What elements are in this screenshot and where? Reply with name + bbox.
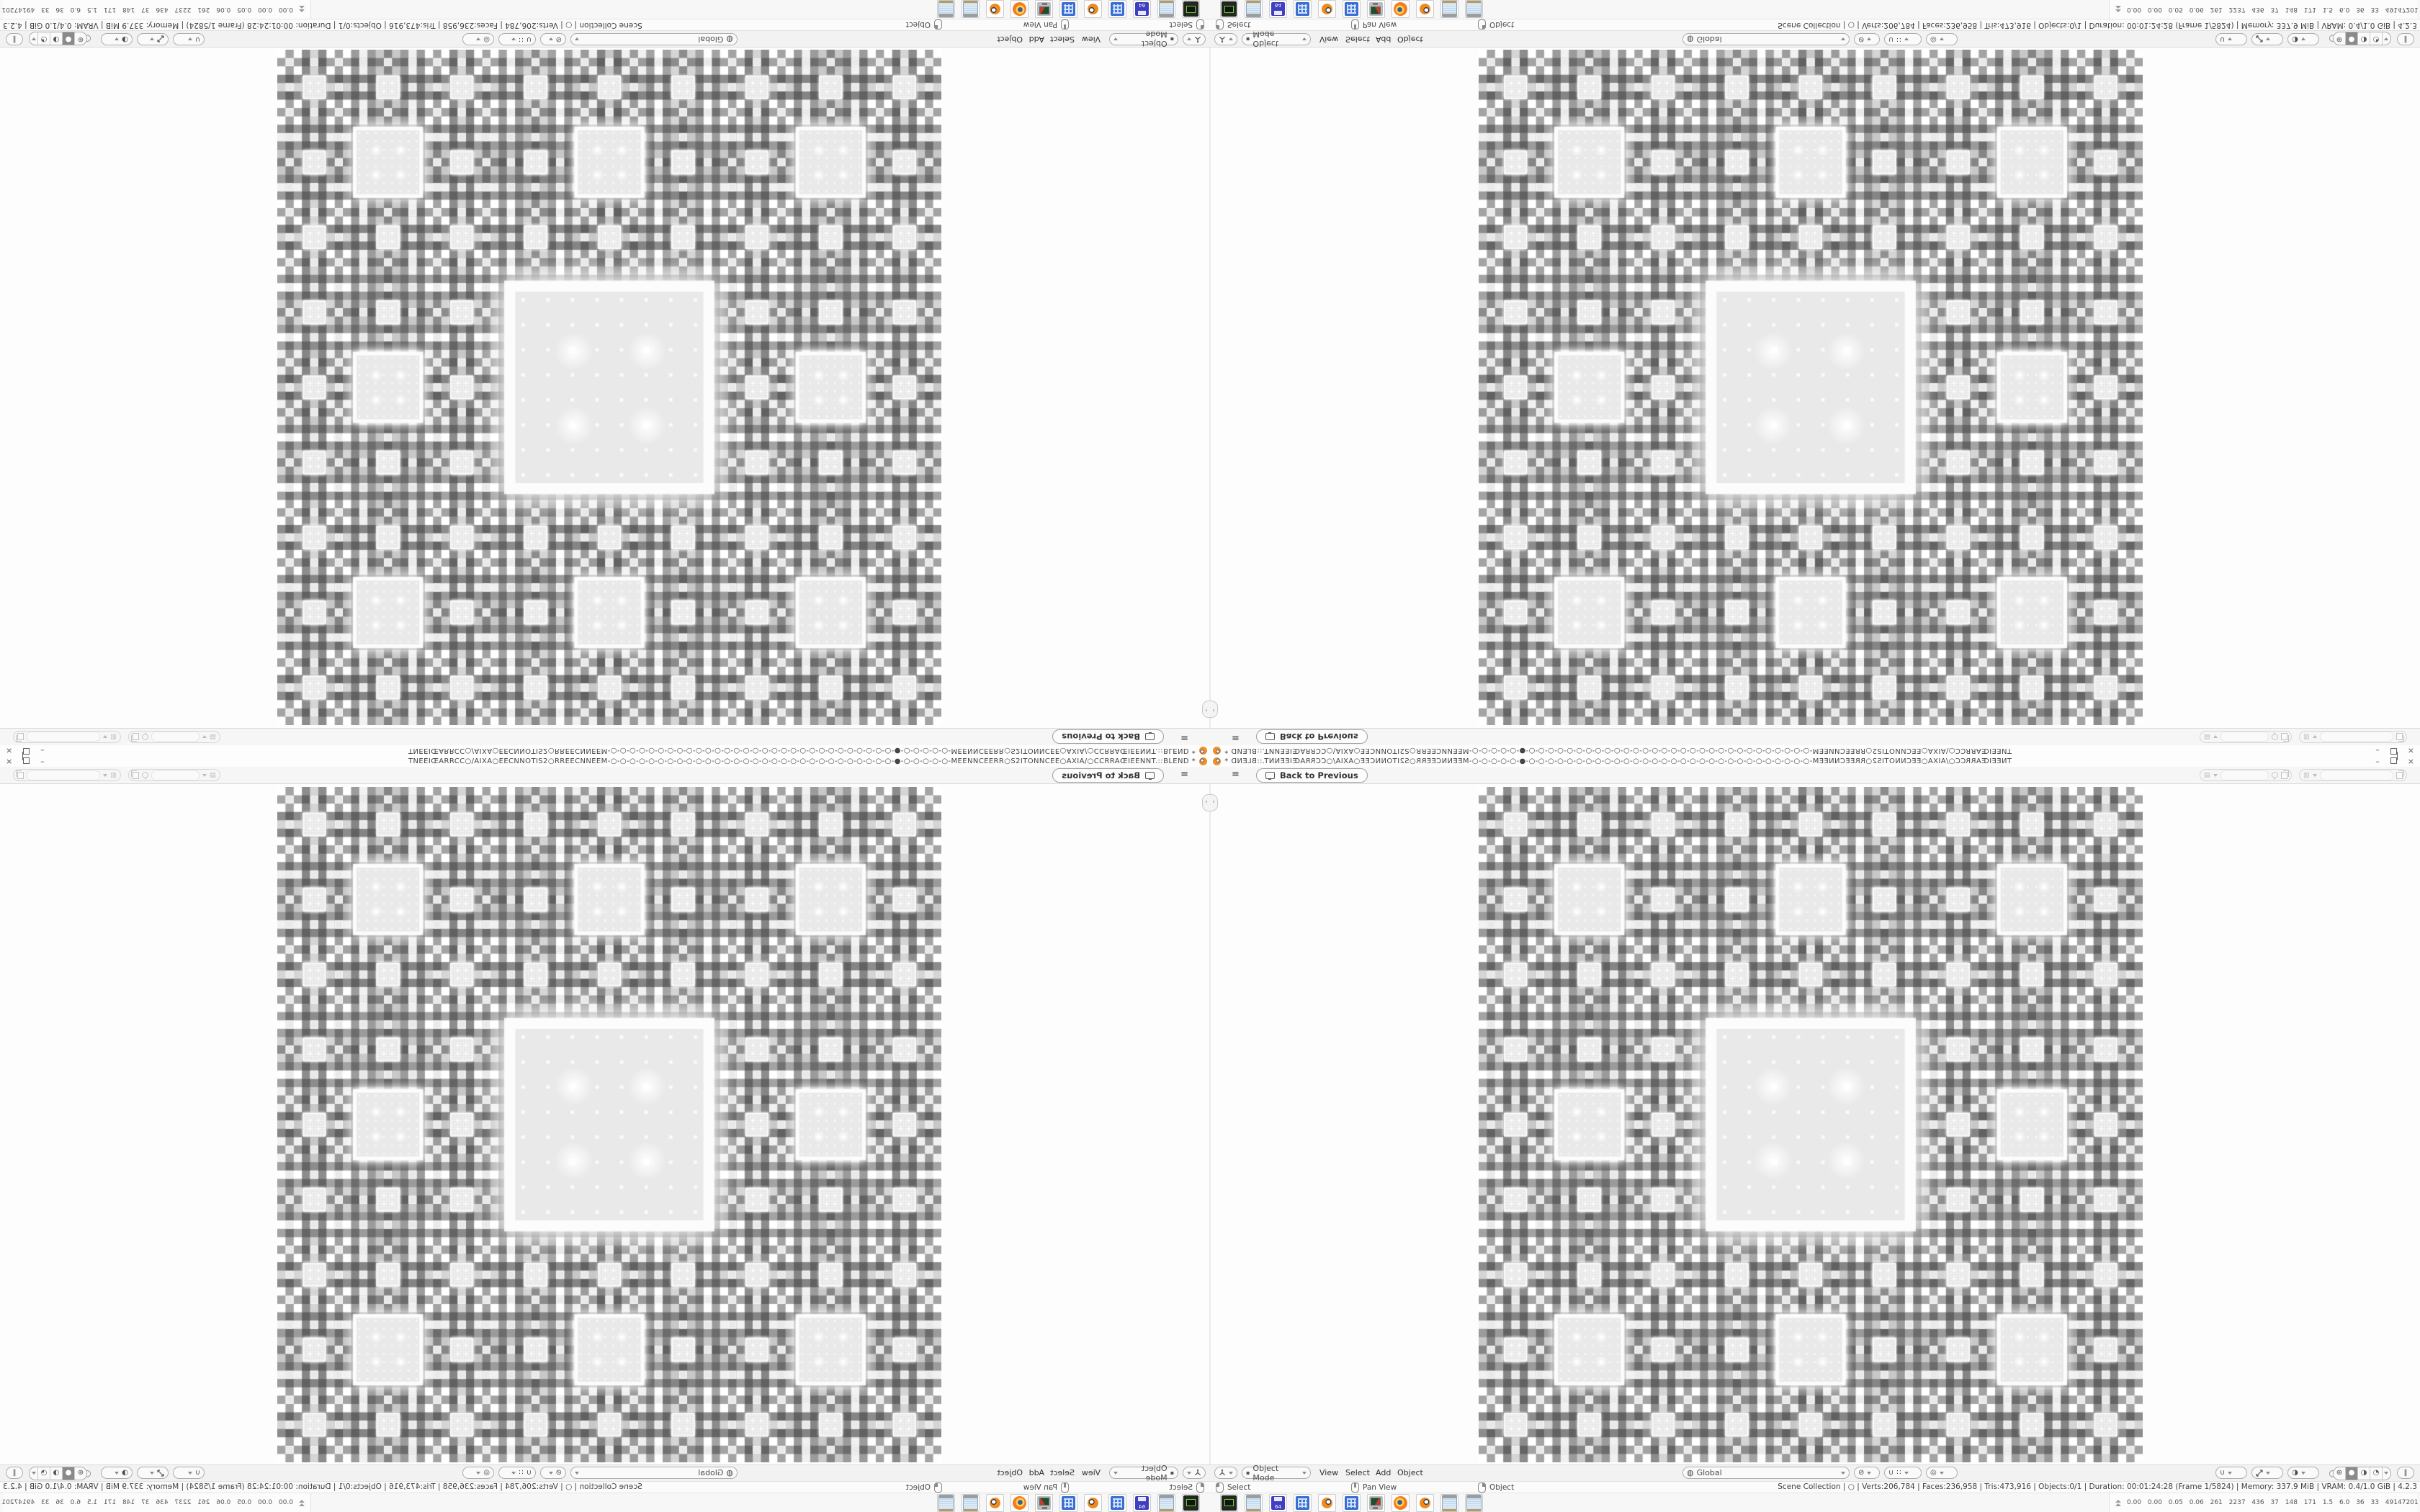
notepad-icon bbox=[1442, 1495, 1457, 1511]
editor-3d-viewport-icon bbox=[1194, 35, 1201, 43]
orientation-icon: ◍ bbox=[726, 35, 733, 44]
hint-object: Object bbox=[1478, 1482, 1514, 1493]
orientation-icon: ◍ bbox=[1687, 1468, 1694, 1477]
hint-select-label: Select bbox=[1170, 1483, 1193, 1492]
back-to-previous-button[interactable]: Back to Previous bbox=[1052, 768, 1164, 783]
chevron-down-icon bbox=[549, 1472, 553, 1475]
notepad-icon bbox=[938, 1, 954, 17]
notepad-icon bbox=[1246, 1495, 1261, 1511]
window-titlebar: TNEEIŒARRCC○/AIXA○EECNNOTIS2○RREECNNEEM-… bbox=[1210, 756, 2420, 767]
taskbar-app-disk[interactable]: 64 bbox=[1133, 0, 1151, 18]
taskbar-app-firefox[interactable] bbox=[1391, 0, 1410, 18]
chevron-up-icon[interactable] bbox=[299, 6, 305, 13]
scene-selector[interactable]: ▤ bbox=[2200, 731, 2292, 743]
mode-label: Object Mode bbox=[1121, 30, 1168, 49]
hint-pan-view: Pan View bbox=[1351, 1482, 1397, 1493]
taskbar-app-calculator[interactable] bbox=[1108, 1494, 1126, 1512]
notepad-icon bbox=[938, 1495, 954, 1511]
scene-stats-text: Scene Collection | ○ | Verts:206,784 | F… bbox=[3, 21, 642, 30]
back-to-previous-button[interactable]: Back to Previous bbox=[1256, 768, 1368, 783]
taskbar-app-firefox[interactable] bbox=[1010, 0, 1028, 18]
snapping-dropdown[interactable]: ∪ ∷ bbox=[498, 33, 536, 45]
gizmo-toggle-button[interactable] bbox=[137, 33, 169, 45]
hint-object: Object bbox=[906, 19, 942, 30]
taskbar-app-blender-2[interactable] bbox=[1416, 1494, 1434, 1512]
chevron-down-icon bbox=[1904, 38, 1909, 41]
object-mode-icon: ▪ bbox=[1246, 1470, 1250, 1476]
capture-tool-icon bbox=[1183, 1, 1198, 17]
chevron-up-icon[interactable] bbox=[2115, 6, 2121, 13]
gizmo-toggle-button[interactable] bbox=[2251, 33, 2283, 45]
hint-select: Select bbox=[1170, 19, 1204, 30]
gizmo-toggle-button[interactable] bbox=[2251, 1467, 2283, 1479]
taskbar-app-calculator[interactable] bbox=[1294, 1494, 1312, 1512]
calculator-icon bbox=[1111, 1496, 1124, 1510]
taskbar-app-blender[interactable] bbox=[1318, 1494, 1336, 1512]
view-layer-icon: ▥ bbox=[110, 734, 117, 741]
chevron-down-icon bbox=[103, 736, 107, 739]
back-to-previous-label: Back to Previous bbox=[1280, 770, 1358, 780]
restore-button[interactable] bbox=[23, 746, 30, 755]
mode-dropdown[interactable]: ▪ Object Mode bbox=[1242, 33, 1311, 45]
status-bar: Select Pan View Object Scene Collection … bbox=[0, 19, 1210, 31]
blender-app-icon bbox=[1418, 1496, 1432, 1510]
chevron-down-icon bbox=[511, 1472, 516, 1475]
close-button[interactable]: × bbox=[2408, 746, 2414, 755]
view-layer-icon: ▥ bbox=[110, 772, 117, 779]
view-layer-name-field[interactable] bbox=[27, 770, 100, 780]
notepad-icon bbox=[1442, 1, 1457, 17]
sphere-icon: ◑ bbox=[122, 35, 128, 43]
performance-overlay: 0.00 0.00 0.05 0.06 261 2237 436 37 148 … bbox=[3, 1493, 311, 1512]
restore-button[interactable] bbox=[2390, 757, 2397, 766]
pivot-icon: ⊘ bbox=[1858, 1469, 1864, 1477]
taskbar-app-calculator-2[interactable] bbox=[1343, 1494, 1361, 1512]
editor-type-button[interactable] bbox=[1214, 33, 1237, 45]
minimize-button[interactable]: – bbox=[40, 746, 45, 755]
taskbar: 64 0.00 0.00 0.05 0.06 261 2237 436 37 1… bbox=[0, 1493, 1210, 1512]
chevron-down-icon bbox=[1187, 38, 1191, 41]
blender-app-icon bbox=[1418, 2, 1432, 16]
scene-selector[interactable]: ▤ bbox=[2200, 769, 2292, 781]
toolbar-toggle-handle[interactable]: ‹ bbox=[1210, 794, 1218, 811]
pivot-point-dropdown[interactable]: ⊘ bbox=[1854, 33, 1880, 45]
proportional-editing-dropdown[interactable]: ◎ bbox=[462, 33, 494, 45]
taskbar-app-blender-2[interactable] bbox=[986, 0, 1004, 18]
menu-object[interactable]: Object bbox=[1397, 1468, 1423, 1477]
minimize-button[interactable]: – bbox=[2375, 757, 2380, 766]
shading-rendered-button[interactable]: ◔ bbox=[2370, 32, 2383, 45]
viewport-3d[interactable]: ‹ bbox=[0, 784, 1210, 1464]
transform-orientation-dropdown[interactable]: ◍ Global bbox=[1682, 1467, 1850, 1479]
proportional-icon: ◎ bbox=[1930, 35, 1937, 43]
viewport-header: ▪ Object Mode View Select Add Object ◍ G… bbox=[1210, 1464, 2420, 1481]
menger-carpet-render bbox=[1479, 50, 2143, 725]
taskbar-app-display-settings[interactable] bbox=[1367, 0, 1385, 18]
hint-pan-view: Pan View bbox=[1351, 19, 1397, 30]
object-mode-icon: ▪ bbox=[1246, 36, 1250, 42]
view-layer-selector[interactable]: ▥ bbox=[2299, 731, 2407, 743]
shading-material-button[interactable]: ◑ bbox=[2358, 1467, 2370, 1480]
snap-target-icon: ∷ bbox=[519, 35, 523, 43]
menu-object[interactable]: Object bbox=[997, 35, 1023, 44]
menu-add[interactable]: Add bbox=[1376, 1468, 1391, 1477]
toolbar-toggle-handle[interactable]: ‹ bbox=[1202, 701, 1210, 718]
hint-object-label: Object bbox=[1489, 20, 1514, 29]
chevron-down-icon bbox=[2266, 38, 2270, 41]
calculator-icon bbox=[1111, 2, 1124, 16]
frame-time-values: 0.00 0.00 0.05 0.06 261 2237 436 37 148 … bbox=[2127, 1499, 2419, 1506]
scene-name-field[interactable] bbox=[2220, 770, 2269, 780]
taskbar-app-notepad-2[interactable] bbox=[962, 0, 980, 18]
scene-icon: ▤ bbox=[2204, 772, 2210, 779]
blender-logo-icon bbox=[1213, 747, 1221, 755]
shading-solid-button[interactable]: ● bbox=[2346, 32, 2358, 45]
taskbar-app-notepad-2[interactable] bbox=[962, 1494, 980, 1512]
shading-solid-button[interactable]: ● bbox=[2346, 1467, 2358, 1480]
shading-material-button[interactable]: ◑ bbox=[2358, 32, 2370, 45]
window-controls: – × bbox=[6, 745, 45, 756]
chevron-down-icon bbox=[115, 1472, 119, 1475]
taskbar-app-notepad-3[interactable] bbox=[937, 1494, 955, 1512]
overlays-dropdown-button[interactable]: ◑ bbox=[101, 33, 133, 45]
shading-rendered-button[interactable]: ◔ bbox=[2370, 1467, 2383, 1480]
taskbar-app-firefox[interactable] bbox=[1010, 1494, 1028, 1512]
chevron-down-icon bbox=[1229, 38, 1233, 41]
snap-target-icon: ∷ bbox=[519, 1469, 523, 1477]
hint-object-label: Object bbox=[1489, 1483, 1514, 1492]
display-settings-icon bbox=[1369, 2, 1383, 16]
menu-view[interactable]: View bbox=[1082, 35, 1101, 44]
taskbar-app-notepad-2[interactable] bbox=[1440, 1494, 1458, 1512]
taskbar-app-firefox[interactable] bbox=[1391, 1494, 1410, 1512]
view-layer-selector[interactable]: ▥ bbox=[2299, 769, 2407, 781]
chevron-down-icon bbox=[202, 736, 207, 739]
chevron-down-icon bbox=[2301, 38, 2305, 41]
window-title-text: TNEEIŒARRCC○/AIXA○EECNNOTIS2○RREECNNEEM-… bbox=[1224, 746, 2012, 755]
chevron-down-icon bbox=[575, 38, 579, 41]
shading-rendered-button[interactable]: ◔ bbox=[37, 32, 50, 45]
shading-wireframe-button[interactable]: ⊕ bbox=[2334, 32, 2346, 45]
snap-toggle-button[interactable]: ∪ bbox=[2215, 1467, 2247, 1479]
notepad-icon bbox=[1246, 1, 1261, 17]
view-layer-icon: ▥ bbox=[2303, 734, 2310, 741]
firefox-icon bbox=[1013, 2, 1026, 16]
back-to-previous-label: Back to Previous bbox=[1280, 732, 1358, 742]
magnet-icon: ∪ bbox=[526, 1469, 532, 1477]
minimize-button[interactable]: – bbox=[40, 757, 45, 766]
snap-toggle-button[interactable]: ∪ bbox=[173, 33, 205, 45]
toolbar-toggle-handle[interactable]: ‹ bbox=[1210, 701, 1218, 718]
xray-toggle-button[interactable]: ‖ bbox=[6, 1467, 23, 1479]
xray-toggle-button[interactable]: ‖ bbox=[6, 33, 23, 45]
mode-dropdown[interactable]: ▪ Object Mode bbox=[1109, 1467, 1178, 1479]
taskbar-app-notepad-3[interactable] bbox=[937, 0, 955, 18]
taskbar-app-display-settings[interactable] bbox=[1035, 1494, 1053, 1512]
new-view-layer-icon[interactable] bbox=[2396, 772, 2403, 779]
overlays-dropdown-button[interactable]: ◑ bbox=[101, 1467, 133, 1479]
editor-3d-viewport-icon bbox=[1194, 1469, 1201, 1477]
taskbar-app-notepad-3[interactable] bbox=[1465, 0, 1483, 18]
taskbar-app-blender[interactable] bbox=[1084, 1494, 1102, 1512]
taskbar: 64 0.00 0.00 0.05 0.06 261 2237 436 37 1… bbox=[0, 0, 1210, 19]
blender-logo-icon bbox=[1213, 757, 1221, 765]
shading-wireframe-button[interactable]: ⊕ bbox=[74, 32, 86, 45]
taskbar-app-capture-tool[interactable] bbox=[1220, 0, 1238, 18]
shading-wireframe-button[interactable]: ⊕ bbox=[2334, 1467, 2346, 1480]
blender-window: TNEEIŒARRCC○/AIXA○EECNNOTIS2○RREECNNEEM-… bbox=[0, 756, 1210, 1512]
proportional-editing-dropdown[interactable]: ◎ bbox=[462, 1467, 494, 1479]
pin-icon[interactable] bbox=[2272, 772, 2278, 778]
chevron-down-icon bbox=[202, 774, 207, 777]
menu-add[interactable]: Add bbox=[1029, 35, 1044, 44]
menu-view[interactable]: View bbox=[1319, 35, 1338, 44]
close-button[interactable]: × bbox=[6, 746, 12, 755]
calculator-icon bbox=[1345, 2, 1358, 16]
chevron-down-icon bbox=[2313, 736, 2317, 739]
scene-stats-text: Scene Collection | ○ | Verts:206,784 | F… bbox=[3, 1482, 642, 1491]
taskbar-app-display-settings[interactable] bbox=[1367, 1494, 1385, 1512]
hamburger-menu-icon[interactable]: ≡ bbox=[1180, 769, 1188, 780]
menu-object[interactable]: Object bbox=[997, 1468, 1023, 1477]
hint-select: Select bbox=[1170, 1482, 1204, 1493]
scene-icon: ▤ bbox=[2204, 734, 2210, 741]
pin-icon[interactable] bbox=[2272, 734, 2278, 740]
status-bar: Select Pan View Object Scene Collection … bbox=[0, 1481, 1210, 1493]
copy-scene-icon[interactable] bbox=[2281, 772, 2287, 779]
chevron-up-icon[interactable] bbox=[299, 1500, 305, 1506]
mode-dropdown[interactable]: ▪ Object Mode bbox=[1242, 1467, 1311, 1479]
taskbar-app-calculator[interactable] bbox=[1294, 0, 1312, 18]
snap-toggle-button[interactable]: ∪ bbox=[173, 1467, 205, 1479]
sphere-icon: ◑ bbox=[2292, 35, 2298, 43]
shading-material-button[interactable]: ◑ bbox=[50, 1467, 62, 1480]
blender-app-icon bbox=[1320, 1496, 1334, 1510]
status-bar: Select Pan View Object Scene Collection … bbox=[1210, 1481, 2420, 1493]
taskbar-app-calculator[interactable] bbox=[1108, 0, 1126, 18]
middle-mouse-icon bbox=[1061, 1482, 1069, 1493]
chevron-down-icon bbox=[2228, 1472, 2232, 1475]
view-layer-name-field[interactable] bbox=[2320, 732, 2393, 742]
view-layer-name-field[interactable] bbox=[2320, 770, 2393, 780]
scene-name-field[interactable] bbox=[2220, 732, 2269, 742]
pivot-point-dropdown[interactable]: ⊘ bbox=[1854, 1467, 1880, 1479]
scene-name-field[interactable] bbox=[151, 732, 200, 742]
shading-rendered-button[interactable]: ◔ bbox=[37, 1467, 50, 1480]
right-mouse-icon bbox=[1478, 1482, 1486, 1493]
pivot-point-dropdown[interactable]: ⊘ bbox=[540, 33, 566, 45]
editor-type-button[interactable] bbox=[1183, 1467, 1206, 1479]
new-view-layer-icon[interactable] bbox=[17, 772, 24, 779]
viewport-3d[interactable]: ‹ bbox=[0, 48, 1210, 728]
taskbar-app-notepad[interactable] bbox=[1245, 1494, 1263, 1512]
chevron-down-icon bbox=[115, 38, 119, 41]
restore-button[interactable] bbox=[2390, 746, 2397, 755]
hint-object-label: Object bbox=[906, 1483, 931, 1492]
copy-scene-icon[interactable] bbox=[2281, 734, 2287, 741]
menu-select[interactable]: Select bbox=[1050, 35, 1075, 44]
view-layer-selector[interactable]: ▥ bbox=[13, 769, 121, 781]
menger-carpet-render bbox=[277, 787, 941, 1462]
pin-icon[interactable] bbox=[142, 772, 148, 778]
menu-select[interactable]: Select bbox=[1345, 35, 1370, 44]
snapping-dropdown[interactable]: ∪ ∷ bbox=[498, 1467, 536, 1479]
notepad-icon bbox=[1466, 1, 1482, 17]
hint-select: Select bbox=[1216, 19, 1250, 30]
pivot-point-dropdown[interactable]: ⊘ bbox=[540, 1467, 566, 1479]
pin-icon[interactable] bbox=[142, 734, 148, 740]
chevron-down-icon bbox=[150, 38, 154, 41]
pivot-icon: ⊘ bbox=[556, 35, 562, 43]
restore-button[interactable] bbox=[23, 757, 30, 766]
chevron-down-icon bbox=[1904, 1472, 1909, 1475]
editor-type-button[interactable] bbox=[1214, 1467, 1237, 1479]
taskbar-app-notepad-3[interactable] bbox=[1465, 1494, 1483, 1512]
shading-solid-button[interactable]: ● bbox=[62, 1467, 74, 1480]
xray-toggle-button[interactable]: ‖ bbox=[2397, 1467, 2414, 1479]
taskbar-apps: 64 bbox=[1220, 1494, 1483, 1512]
blender-app-icon bbox=[1086, 1496, 1100, 1510]
taskbar-app-notepad[interactable] bbox=[1157, 1494, 1175, 1512]
snapping-dropdown[interactable]: ∪ ∷ bbox=[1884, 1467, 1922, 1479]
shading-material-button[interactable]: ◑ bbox=[50, 32, 62, 45]
new-view-layer-icon[interactable] bbox=[2396, 734, 2403, 741]
back-to-previous-button[interactable]: Back to Previous bbox=[1256, 729, 1368, 744]
sphere-icon: ◑ bbox=[2292, 1469, 2298, 1477]
proportional-editing-dropdown[interactable]: ◎ bbox=[1926, 33, 1958, 45]
snap-toggle-button[interactable]: ∪ bbox=[2215, 33, 2247, 45]
transform-orientation-dropdown[interactable]: ◍ Global bbox=[570, 1467, 738, 1479]
proportional-icon: ◎ bbox=[1930, 1469, 1937, 1477]
menu-select[interactable]: Select bbox=[1050, 1468, 1075, 1477]
taskbar-app-blender-2[interactable] bbox=[986, 1494, 1004, 1512]
taskbar-app-capture-tool[interactable] bbox=[1182, 0, 1200, 18]
viewport-3d[interactable]: ‹ bbox=[1210, 784, 2420, 1464]
proportional-icon: ◎ bbox=[483, 1469, 490, 1477]
move-arrows-icon bbox=[2256, 1470, 2263, 1477]
taskbar-app-blender[interactable] bbox=[1318, 0, 1336, 18]
taskbar-app-capture-tool[interactable] bbox=[1220, 1494, 1238, 1512]
editor-3d-viewport-icon bbox=[1219, 1469, 1226, 1477]
back-to-previous-button[interactable]: Back to Previous bbox=[1052, 729, 1164, 744]
menu-select[interactable]: Select bbox=[1345, 1468, 1370, 1477]
menu-add[interactable]: Add bbox=[1029, 1468, 1044, 1477]
frame-time-values: 0.00 0.00 0.05 0.06 261 2237 436 37 148 … bbox=[1, 1499, 293, 1506]
taskbar-app-display-settings[interactable] bbox=[1035, 0, 1053, 18]
copy-scene-icon[interactable] bbox=[133, 734, 139, 741]
scene-selector[interactable]: ▤ bbox=[128, 731, 220, 743]
menger-carpet-render bbox=[277, 50, 941, 725]
menu-view[interactable]: View bbox=[1082, 1468, 1101, 1477]
back-to-previous-label: Back to Previous bbox=[1062, 732, 1140, 742]
taskbar: 64 0.00 0.00 0.05 0.06 261 2237 436 37 1… bbox=[1210, 0, 2420, 19]
calculator-icon bbox=[1296, 2, 1309, 16]
orientation-label: Global bbox=[582, 35, 723, 44]
taskbar-app-capture-tool[interactable] bbox=[1182, 1494, 1200, 1512]
proportional-editing-dropdown[interactable]: ◎ bbox=[1926, 1467, 1958, 1479]
taskbar-app-calculator-2[interactable] bbox=[1343, 0, 1361, 18]
close-button[interactable]: × bbox=[2408, 757, 2414, 766]
overlays-dropdown-button[interactable]: ◑ bbox=[2287, 1467, 2319, 1479]
pivot-icon: ⊘ bbox=[1858, 35, 1864, 43]
shading-solid-button[interactable]: ● bbox=[62, 32, 74, 45]
snapping-dropdown[interactable]: ∪ ∷ bbox=[1884, 33, 1922, 45]
taskbar-app-calculator-2[interactable] bbox=[1059, 0, 1077, 18]
xray-toggle-button[interactable]: ‖ bbox=[2397, 33, 2414, 45]
menu-object[interactable]: Object bbox=[1397, 35, 1423, 44]
taskbar-app-disk[interactable]: 64 bbox=[1133, 1494, 1151, 1512]
hint-pan-view: Pan View bbox=[1023, 1482, 1069, 1493]
minimize-button[interactable]: – bbox=[2375, 746, 2380, 755]
blender-window: TNEEIŒARRCC○/AIXA○EECNNOTIS2○RREECNNEEM-… bbox=[1210, 756, 2420, 1512]
taskbar-app-disk[interactable]: 64 bbox=[1269, 1494, 1287, 1512]
chevron-down-icon bbox=[1867, 38, 1871, 41]
view-layer-name-field[interactable] bbox=[27, 732, 100, 742]
shading-mode-group: ⊕ ● ◑ ◔ bbox=[29, 1467, 87, 1480]
window-titlebar: TNEEIŒARRCC○/AIXA○EECNNOTIS2○RREECNNEEM-… bbox=[1210, 745, 2420, 756]
scene-name-field[interactable] bbox=[151, 770, 200, 780]
taskbar-apps: 64 bbox=[937, 0, 1200, 18]
topbar: ≡ Back to Previous ▤ ▥ bbox=[1210, 728, 2420, 745]
notepad-icon bbox=[1466, 1495, 1482, 1511]
taskbar-app-calculator-2[interactable] bbox=[1059, 1494, 1077, 1512]
taskbar-app-notepad[interactable] bbox=[1245, 0, 1263, 18]
hamburger-menu-icon[interactable]: ≡ bbox=[1232, 732, 1240, 743]
taskbar: 64 0.00 0.00 0.05 0.06 261 2237 436 37 1… bbox=[1210, 1493, 2420, 1512]
transform-orientation-dropdown[interactable]: ◍ Global bbox=[1682, 33, 1850, 45]
toolbar-toggle-handle[interactable]: ‹ bbox=[1202, 794, 1210, 811]
new-view-layer-icon[interactable] bbox=[17, 734, 24, 741]
viewport-3d[interactable]: ‹ bbox=[1210, 48, 2420, 728]
copy-scene-icon[interactable] bbox=[133, 772, 139, 779]
blender-logo-icon bbox=[1199, 747, 1207, 755]
mode-dropdown[interactable]: ▪ Object Mode bbox=[1109, 33, 1178, 45]
window-controls: – × bbox=[2375, 756, 2414, 767]
gizmo-toggle-button[interactable] bbox=[137, 1467, 169, 1479]
disk-label: 64 bbox=[1271, 1504, 1285, 1510]
view-layer-selector[interactable]: ▥ bbox=[13, 731, 121, 743]
floppy-disk-icon: 64 bbox=[1271, 2, 1285, 16]
hamburger-menu-icon[interactable]: ≡ bbox=[1180, 732, 1188, 743]
magnet-icon: ∪ bbox=[2220, 1469, 2225, 1477]
editor-type-button[interactable] bbox=[1183, 33, 1206, 45]
chevron-up-icon[interactable] bbox=[2115, 1500, 2121, 1506]
blender-app-icon bbox=[988, 1496, 1002, 1510]
overlays-dropdown-button[interactable]: ◑ bbox=[2287, 33, 2319, 45]
menu-view[interactable]: View bbox=[1319, 1468, 1338, 1477]
chevron-down-icon bbox=[32, 1472, 36, 1475]
scene-icon: ▤ bbox=[210, 734, 216, 741]
taskbar-app-disk[interactable]: 64 bbox=[1269, 0, 1287, 18]
transform-orientation-dropdown[interactable]: ◍ Global bbox=[570, 33, 738, 45]
menu-add[interactable]: Add bbox=[1376, 35, 1391, 44]
taskbar-app-notepad[interactable] bbox=[1157, 0, 1175, 18]
shading-wireframe-button[interactable]: ⊕ bbox=[74, 1467, 86, 1480]
magnet-icon: ∪ bbox=[195, 35, 200, 43]
close-button[interactable]: × bbox=[6, 757, 12, 766]
chevron-down-icon bbox=[2228, 38, 2232, 41]
taskbar-app-notepad-2[interactable] bbox=[1440, 0, 1458, 18]
window-titlebar: TNEEIŒARRCC○/AIXA○EECNNOTIS2○RREECNNEEM-… bbox=[0, 756, 1210, 767]
display-back-icon bbox=[1265, 772, 1275, 779]
scene-stats-text: Scene Collection | ○ | Verts:206,784 | F… bbox=[1778, 1482, 2417, 1491]
viewport-header: ▪ Object Mode View Select Add Object ◍ G… bbox=[1210, 31, 2420, 48]
taskbar-app-blender-2[interactable] bbox=[1416, 0, 1434, 18]
scene-selector[interactable]: ▤ bbox=[128, 769, 220, 781]
taskbar-app-blender[interactable] bbox=[1084, 0, 1102, 18]
hamburger-menu-icon[interactable]: ≡ bbox=[1232, 769, 1240, 780]
object-mode-icon: ▪ bbox=[1170, 36, 1174, 42]
